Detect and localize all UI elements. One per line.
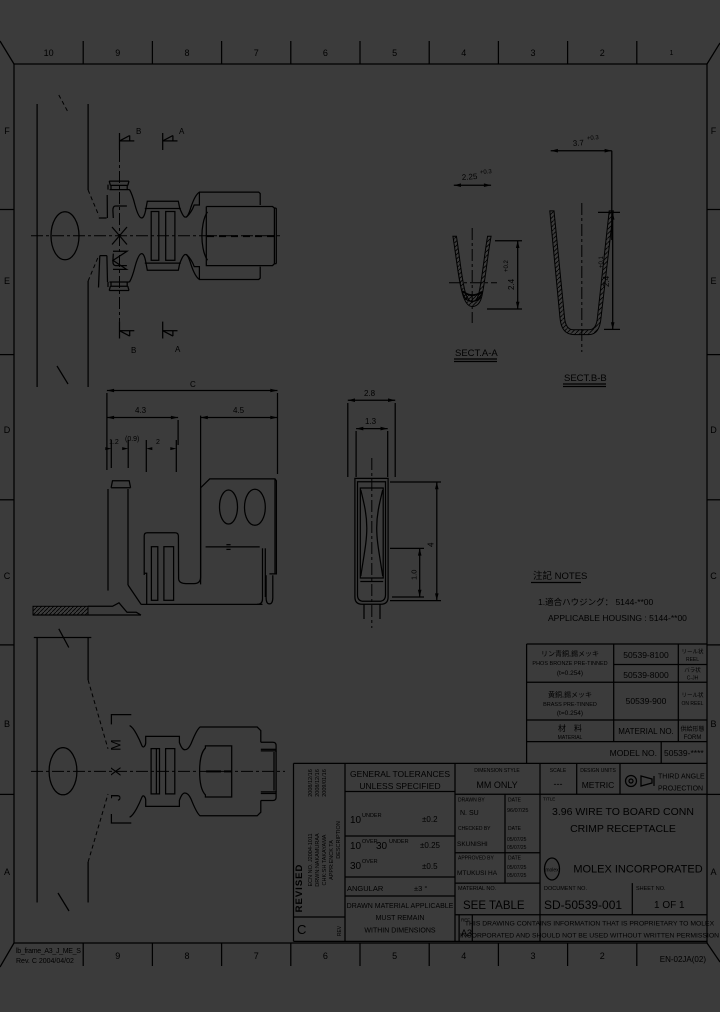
svg-text:7: 7 (254, 951, 259, 961)
svg-text:J: J (108, 794, 124, 801)
svg-text:10: 10 (350, 815, 362, 826)
svg-text:DRWN:NAKAMURAA: DRWN:NAKAMURAA (315, 833, 321, 887)
svg-text:C: C (4, 571, 11, 581)
svg-text:供給形態: 供給形態 (680, 725, 704, 733)
svg-text:材 料: 材 料 (558, 723, 582, 733)
svg-text:GENERAL TOLERANCES: GENERAL TOLERANCES (350, 769, 450, 779)
svg-text:PHOS BRONZE PRE-TINNED: PHOS BRONZE PRE-TINNED (532, 661, 607, 667)
svg-text:3.7: 3.7 (573, 138, 585, 148)
svg-text:DATE: DATE (508, 826, 522, 832)
svg-text:2.8: 2.8 (364, 389, 376, 398)
svg-text:±0.5: ±0.5 (422, 862, 438, 871)
svg-text:2.4: 2.4 (507, 278, 516, 290)
svg-text:96/07/25: 96/07/25 (507, 808, 528, 814)
svg-text:E: E (4, 276, 10, 286)
svg-text:1 OF 1: 1 OF 1 (654, 900, 685, 911)
svg-text:+0.3: +0.3 (480, 169, 493, 176)
svg-text:B: B (710, 719, 716, 729)
svg-text:C: C (710, 571, 717, 581)
svg-text:バラ状: バラ状 (684, 666, 701, 674)
svg-text:4: 4 (427, 542, 436, 547)
svg-text:2.25: 2.25 (462, 172, 479, 182)
svg-text:APPLICABLE HOUSING : 5144-**00: APPLICABLE HOUSING : 5144-**00 (548, 613, 687, 623)
svg-text:5: 5 (392, 48, 397, 58)
svg-text:PROJECTION: PROJECTION (658, 786, 703, 793)
svg-text:FORM: FORM (684, 735, 702, 741)
svg-text:Rev. C 2004/04/02: Rev. C 2004/04/02 (16, 958, 74, 965)
svg-text:50539-900: 50539-900 (626, 696, 667, 706)
svg-text:DOCUMENT NO.: DOCUMENT NO. (544, 886, 587, 892)
svg-text:+0.1: +0.1 (599, 255, 605, 268)
svg-text:6: 6 (323, 951, 328, 961)
svg-text:9: 9 (115, 48, 120, 58)
svg-text:B: B (4, 719, 10, 729)
svg-text:注記 NOTES: 注記 NOTES (533, 570, 587, 582)
svg-text:C: C (190, 380, 196, 389)
svg-text:05/07/25: 05/07/25 (507, 845, 527, 851)
svg-text:METRIC: METRIC (582, 780, 615, 790)
svg-text:3.96 WIRE TO BOARD CONN: 3.96 WIRE TO BOARD CONN (552, 806, 694, 818)
svg-text:DESIGN UNITS: DESIGN UNITS (580, 768, 616, 774)
svg-text:リン青銅,錫メッキ: リン青銅,錫メッキ (541, 649, 599, 658)
svg-text:8: 8 (184, 48, 189, 58)
svg-text:05/07/25: 05/07/25 (507, 865, 527, 871)
svg-text:1.2: 1.2 (109, 439, 119, 446)
svg-text:D: D (710, 425, 717, 435)
svg-text:E: E (710, 276, 716, 286)
svg-text:A: A (710, 867, 716, 877)
svg-text:6: 6 (323, 48, 328, 58)
svg-text:4.5: 4.5 (233, 406, 245, 415)
svg-text:CHECKED BY: CHECKED BY (458, 826, 491, 832)
svg-text:SECT.B-B: SECT.B-B (564, 373, 607, 384)
svg-text:UNDER: UNDER (389, 839, 409, 845)
svg-text:MTUKUSI HA: MTUKUSI HA (457, 870, 498, 877)
svg-text:(0.9): (0.9) (125, 436, 139, 443)
svg-text:50539-****: 50539-**** (664, 748, 704, 758)
svg-text:リール状: リール状 (681, 691, 704, 699)
svg-text:UNDER: UNDER (362, 813, 382, 819)
svg-text:A: A (175, 345, 181, 354)
svg-text:BRASS PRE-TINNED: BRASS PRE-TINNED (543, 702, 597, 708)
svg-text:MATERIAL: MATERIAL (558, 735, 583, 741)
svg-text:F: F (4, 126, 10, 136)
svg-text:APPROVED BY: APPROVED BY (458, 856, 495, 862)
svg-text:1.3: 1.3 (365, 417, 377, 426)
svg-text:2: 2 (156, 439, 160, 446)
svg-text:4: 4 (461, 951, 466, 961)
svg-text:---: --- (554, 779, 563, 789)
svg-text:ON REEL: ON REEL (682, 701, 704, 707)
svg-text:SD-50539-001: SD-50539-001 (544, 898, 622, 912)
svg-text:3: 3 (530, 48, 535, 58)
svg-text:50539-8000: 50539-8000 (623, 670, 669, 680)
svg-text:2: 2 (600, 951, 605, 961)
svg-text:MOLEX INCORPORATED: MOLEX INCORPORATED (573, 864, 702, 876)
svg-text:THIRD ANGLE: THIRD ANGLE (658, 774, 705, 781)
svg-text:10: 10 (350, 841, 362, 852)
svg-text:±3 °: ±3 ° (414, 884, 427, 893)
svg-text:REEL: REEL (686, 657, 699, 663)
svg-text:M: M (108, 739, 124, 751)
svg-text:±0.2: ±0.2 (422, 815, 438, 824)
svg-text:7: 7 (254, 48, 259, 58)
svg-text:A: A (179, 127, 185, 136)
svg-text:3: 3 (530, 951, 535, 961)
svg-text:2: 2 (600, 48, 605, 58)
svg-text:10: 10 (44, 48, 54, 58)
svg-text:±0.25: ±0.25 (420, 841, 441, 850)
svg-text:ECN NO. J2004-1011: ECN NO. J2004-1011 (308, 833, 314, 886)
svg-text:SEE TABLE: SEE TABLE (463, 900, 525, 912)
svg-text:2008/12/16: 2008/12/16 (315, 769, 321, 797)
svg-text:MODEL NO.: MODEL NO. (610, 748, 657, 758)
svg-text:DRAWN MATERIAL APPLICABLE: DRAWN MATERIAL APPLICABLE (347, 903, 454, 910)
svg-text:CHK:SH TAKAYAMA: CHK:SH TAKAYAMA (322, 834, 328, 885)
svg-text:(t=0.254): (t=0.254) (557, 670, 583, 677)
svg-text:SHEET NO.: SHEET NO. (636, 886, 666, 892)
svg-text:黄銅,錫メッキ: 黄銅,錫メッキ (548, 690, 592, 699)
svg-text:(t=0.254): (t=0.254) (557, 710, 583, 717)
svg-text:N. SU: N. SU (460, 810, 479, 817)
svg-text:REV: REV (337, 925, 343, 936)
svg-text:F: F (711, 126, 717, 136)
svg-text:2009/01/16: 2009/01/16 (322, 769, 328, 797)
svg-text:DESCRIPTION: DESCRIPTION (336, 821, 342, 859)
svg-text:2008/12/16: 2008/12/16 (308, 769, 314, 797)
svg-text:30: 30 (376, 841, 388, 852)
svg-text:TITLE: TITLE (543, 797, 555, 802)
svg-text:4: 4 (461, 48, 466, 58)
svg-text:MM ONLY: MM ONLY (476, 780, 517, 790)
svg-text:DRAWN BY: DRAWN BY (458, 798, 485, 804)
svg-text:APPR:ENCK TA: APPR:ENCK TA (329, 840, 335, 880)
svg-text:4.3: 4.3 (135, 406, 147, 415)
svg-text:WITHIN DIMENSIONS: WITHIN DIMENSIONS (364, 928, 435, 935)
svg-text:1: 1 (669, 50, 673, 57)
svg-text:C-JH: C-JH (687, 676, 699, 682)
svg-text:OVER: OVER (362, 859, 378, 865)
svg-text:9: 9 (115, 951, 120, 961)
svg-text:DATE: DATE (508, 798, 522, 804)
svg-text:CRIMP RECEPTACLE: CRIMP RECEPTACLE (570, 823, 676, 835)
svg-text:5: 5 (392, 951, 397, 961)
svg-text:UNLESS SPECIFIED: UNLESS SPECIFIED (359, 781, 440, 791)
svg-text:C: C (297, 922, 306, 937)
svg-text:8: 8 (184, 951, 189, 961)
svg-text:SCALE: SCALE (550, 768, 567, 774)
svg-text:THIS DRAWING CONTAINS INFORMAT: THIS DRAWING CONTAINS INFORMATION THAT I… (465, 921, 715, 928)
svg-text:EN-02JA(02): EN-02JA(02) (660, 955, 707, 964)
svg-text:05/07/25: 05/07/25 (507, 837, 527, 843)
svg-text:X: X (108, 766, 124, 776)
svg-text:REVISED: REVISED (294, 864, 305, 913)
svg-text:B: B (131, 346, 136, 355)
svg-text:MATERIAL NO.: MATERIAL NO. (618, 727, 674, 736)
svg-text:1.0: 1.0 (410, 570, 419, 580)
svg-text:DATE: DATE (508, 856, 522, 862)
svg-text:SKUNISHI: SKUNISHI (457, 841, 488, 848)
svg-text:ANGULAR: ANGULAR (347, 884, 384, 893)
svg-text:05/07/25: 05/07/25 (507, 873, 527, 879)
svg-text:B: B (136, 127, 141, 136)
svg-text:2.4: 2.4 (602, 275, 611, 287)
svg-text:molex: molex (545, 868, 559, 874)
svg-text:リール状: リール状 (681, 648, 704, 656)
svg-text:SECT.A-A: SECT.A-A (455, 348, 498, 359)
svg-text:+0.3: +0.3 (587, 135, 600, 142)
svg-text:A: A (4, 867, 10, 877)
svg-text:DIMENSION STYLE: DIMENSION STYLE (474, 768, 520, 774)
svg-text:lb_frame_A3_J_ME_S: lb_frame_A3_J_ME_S (16, 948, 81, 955)
svg-text:MUST REMAIN: MUST REMAIN (376, 915, 425, 922)
svg-text:30: 30 (350, 861, 362, 872)
svg-text:+0.2: +0.2 (504, 259, 510, 272)
svg-text:D: D (4, 425, 11, 435)
svg-text:50539-8100: 50539-8100 (623, 650, 669, 660)
svg-text:MATERIAL NO.: MATERIAL NO. (458, 886, 497, 892)
svg-text:1.適合ハウジング： 5144-**00: 1.適合ハウジング： 5144-**00 (538, 597, 654, 607)
svg-text:INCORPORATED AND SHOULD NOT BE: INCORPORATED AND SHOULD NOT BE USED WITH… (460, 933, 719, 940)
